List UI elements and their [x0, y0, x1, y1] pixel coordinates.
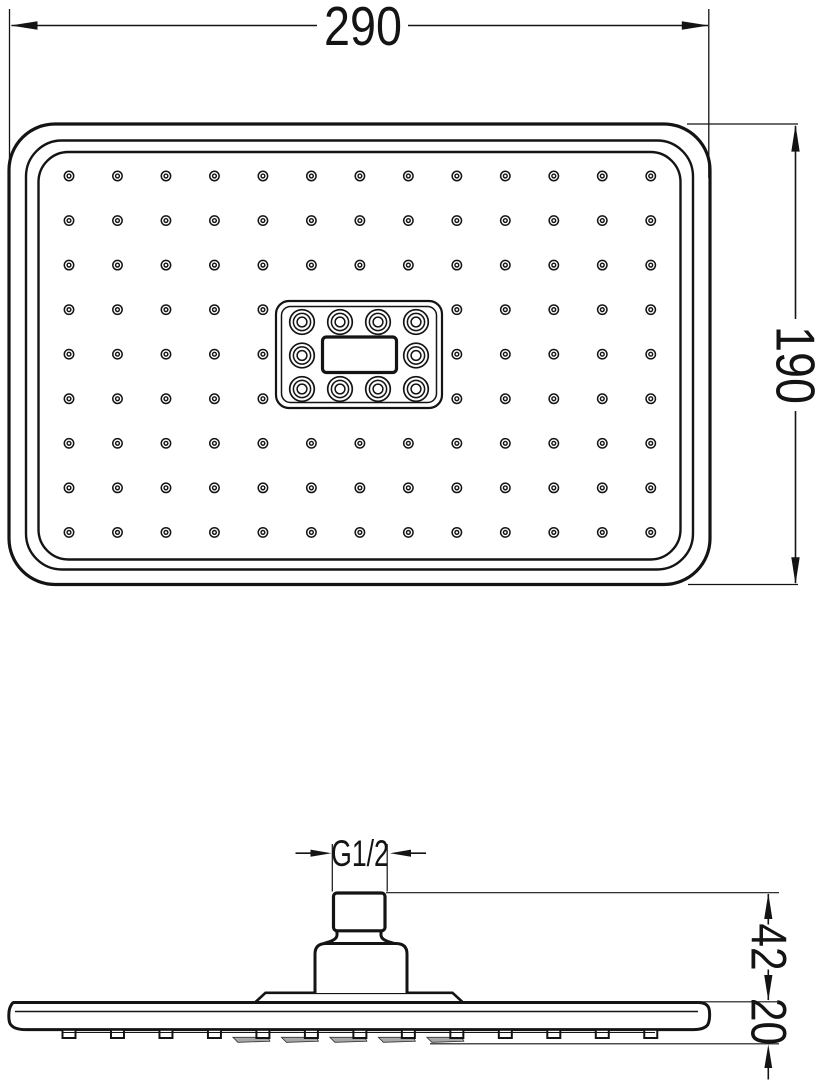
nozzle-tooth [256, 1030, 269, 1038]
technical-drawing-sheet: 290 190 G1/2 [0, 0, 823, 1081]
neck-flare [324, 931, 395, 944]
nozzle-tooth [305, 1030, 318, 1038]
connector-height-label: 42 [741, 923, 797, 970]
thread-dimension: G1/2 [296, 833, 427, 892]
arrowhead-up-icon [764, 893, 772, 919]
nozzle-tooth [450, 1030, 463, 1038]
nozzle-tooth [402, 1030, 415, 1038]
arrowhead-down-icon [764, 975, 772, 1001]
nozzle-tooth [644, 1030, 657, 1038]
front-view [9, 124, 710, 585]
height-label: 190 [765, 326, 823, 404]
nozzle-tooth [111, 1030, 124, 1038]
arrowhead-up-icon [764, 1044, 772, 1068]
arrowhead-right-icon [311, 850, 332, 857]
side-head-body [9, 1003, 710, 1030]
shower-head-drawing: 290 190 G1/2 [0, 0, 823, 1081]
nozzle-tooth [547, 1030, 560, 1038]
arrowhead-right-icon [682, 21, 709, 30]
arrowhead-left-icon [390, 850, 411, 857]
nozzle-tooth [499, 1030, 512, 1038]
thread-label: G1/2 [331, 833, 389, 874]
connector-height-dimension: 42 [386, 893, 797, 1002]
arrowhead-up-icon [791, 125, 799, 152]
thread-connector [334, 893, 386, 931]
nozzle-tooth [159, 1030, 172, 1038]
nozzle-tooth [208, 1030, 221, 1038]
nozzle-teeth-row [63, 1030, 658, 1043]
nozzle-tooth [596, 1030, 609, 1038]
width-label: 290 [324, 0, 402, 57]
nozzle-tooth [353, 1030, 366, 1038]
mounting-block [315, 944, 407, 994]
nozzle-tooth [63, 1030, 76, 1038]
head-thickness-label: 20 [741, 998, 797, 1045]
arrowhead-down-icon [791, 557, 799, 584]
arrowhead-left-icon [11, 21, 38, 30]
side-view [9, 893, 710, 1042]
